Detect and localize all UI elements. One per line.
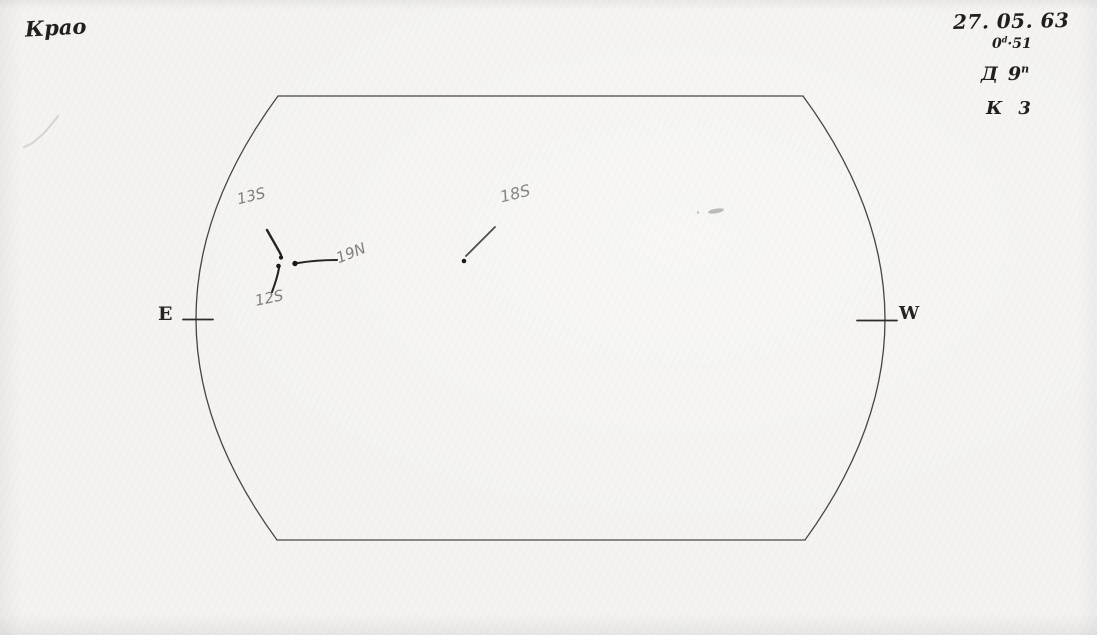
time-base: 0	[992, 36, 1002, 52]
sunspot-dot-19n	[292, 261, 297, 266]
param-d-value: 9	[1008, 63, 1021, 85]
observation-time: 0d·51	[992, 37, 1032, 51]
disk-outline	[196, 96, 885, 540]
pointer-line-18s	[466, 227, 495, 256]
pointer-line-19n	[298, 260, 337, 263]
param-k-value: 3	[1018, 98, 1031, 119]
sunspot-dot-12s	[276, 264, 281, 269]
paper-sheet: Крао 27. 05. 63 0d·51 Д9n К3 E W 13S 12S…	[0, 0, 1097, 635]
pointer-line-13s	[267, 230, 281, 255]
pencil-smudge-left-edge	[24, 116, 58, 147]
param-d-symbol: Д	[981, 63, 998, 85]
east-limb-label: E	[158, 305, 172, 324]
sunspot-dot-13s	[279, 255, 283, 259]
stray-speck	[697, 211, 699, 213]
param-d-line: Д9n	[981, 65, 1029, 84]
observation-date: 27. 05. 63	[953, 10, 1070, 32]
param-k-symbol: К	[986, 98, 1002, 119]
stray-pen-smudge	[708, 207, 725, 214]
west-limb-label: W	[899, 305, 919, 323]
param-k-line: К3	[986, 100, 1031, 118]
param-d-sup: n	[1021, 63, 1029, 76]
sunspot-dot-18s	[462, 259, 467, 264]
time-fraction: ·51	[1007, 36, 1031, 52]
observatory-label: Крао	[24, 15, 86, 39]
